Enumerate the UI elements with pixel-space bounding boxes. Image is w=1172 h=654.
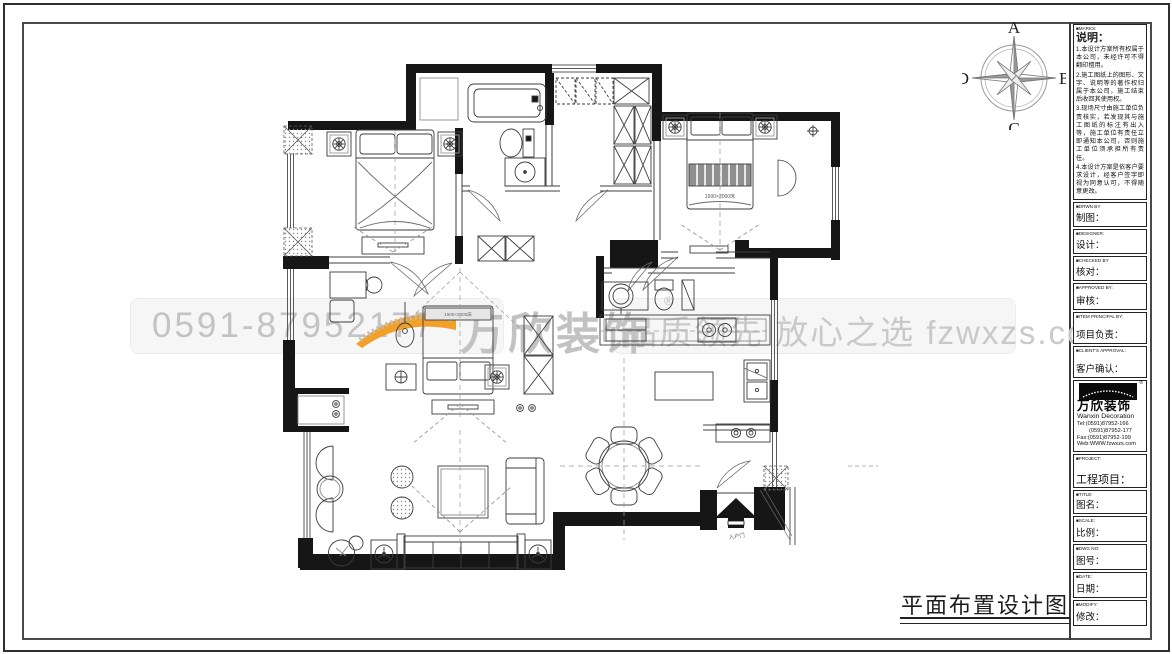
field-drawn-by-zh: 制图： <box>1076 213 1144 225</box>
compass-north-label: A <box>1008 20 1021 37</box>
field-checked-by: ■CHECKED BY 核对： <box>1073 256 1147 281</box>
entrance-label: 入户门 <box>728 531 745 541</box>
kitchen <box>600 315 770 402</box>
note-item-1: 1.本设计方案所有权属于本公司，未经许可不得翻印擅用。 <box>1076 46 1144 71</box>
company-name-cn: 万欣装饰 <box>1077 400 1131 413</box>
compass-south-label: C <box>1008 119 1019 130</box>
walls <box>283 64 840 570</box>
field-project-en: ■PROJECT: <box>1076 456 1144 462</box>
field-checked-by-zh: 核对： <box>1076 267 1144 279</box>
compass-east-label: B <box>1059 69 1066 88</box>
titleblock: ■MARKS: 说明： 1.本设计方案所有权属于本公司，未经许可不得翻印擅用。 … <box>1073 24 1147 626</box>
field-modify-zh: 修改： <box>1076 612 1144 624</box>
field-project: ■PROJECT: 工程项目： <box>1073 454 1147 488</box>
company-box: ® 万欣装饰 Wanxin Decoration Tel:(0591)87952… <box>1073 380 1147 452</box>
field-dwg-no-zh: 图号： <box>1076 556 1144 568</box>
company-tel-1: Tel:(0591)87952-166 <box>1077 421 1129 428</box>
field-drawn-by: ■DRWN BY 制图： <box>1073 202 1147 227</box>
company-name-en: Wanxin Decoration <box>1077 413 1134 421</box>
field-dwg-no-en: ■DWG NO: <box>1076 546 1144 552</box>
field-approved-by-zh: 审核： <box>1076 296 1144 308</box>
field-item-principal-en: ■ITEM PRINCIPAL BY: <box>1076 314 1144 320</box>
bedroom3: 1500×2000床 <box>330 268 535 444</box>
field-title-en: ■TITLE: <box>1076 492 1144 498</box>
company-logo-reg-icon: ® <box>1139 380 1143 386</box>
field-item-principal: ■ITEM PRINCIPAL BY: 项目负责： <box>1073 312 1147 344</box>
compass-west-label: D <box>962 69 969 88</box>
note-item-3: 3.现场尺寸由施工单位负责核实，若发现其与施工图纸的标注有出入等，施工单位有责任… <box>1076 105 1144 162</box>
compass-rose: A B C D <box>962 20 1066 130</box>
field-project-zh: 工程项目： <box>1076 474 1144 486</box>
field-scale-en: ■SCALE: <box>1076 518 1144 524</box>
windows <box>288 65 839 545</box>
utility-balcony <box>298 396 344 424</box>
bathroom1 <box>468 84 546 186</box>
field-date-zh: 日期： <box>1076 584 1144 596</box>
field-modify: ■MODIFY: 修改： <box>1073 600 1147 626</box>
field-client-approval-zh: 客户确认： <box>1076 364 1144 376</box>
field-scale: ■SCALE: 比例： <box>1073 516 1147 542</box>
field-designer-en: ■DESIGNER: <box>1076 231 1144 237</box>
field-drawn-by-en: ■DRWN BY <box>1076 204 1144 210</box>
field-checked-by-en: ■CHECKED BY <box>1076 258 1144 264</box>
company-tel-2: (0591)87952-177 <box>1077 428 1132 435</box>
notes-label-zh: 说明： <box>1076 32 1144 45</box>
field-designer-zh: 设计： <box>1076 240 1144 252</box>
field-approved-by: ■APPROVED BY: 审核： <box>1073 283 1147 310</box>
company-logo-icon: ® <box>1079 383 1137 400</box>
notes-box: ■MARKS: 说明： 1.本设计方案所有权属于本公司，未经许可不得翻印擅用。 … <box>1073 24 1147 200</box>
field-date-en: ■DATE: <box>1076 574 1144 580</box>
field-title-zh: 图名： <box>1076 500 1144 512</box>
bed-size-label-2: 1500×2000床 <box>444 311 472 318</box>
company-fax: Fax:(0591)87952-199 <box>1077 435 1131 442</box>
living-room <box>316 430 551 569</box>
company-web: Web:WWW.fzwxzs.com <box>1077 441 1136 448</box>
note-item-4: 4.本设计方案是依客户要求设计，经客户签字即视为同意认可，不得随意更改。 <box>1076 164 1144 197</box>
field-client-approval-en: ■CLIENT'S APPROVAL: <box>1076 348 1144 354</box>
field-item-principal-zh: 项目负责： <box>1076 330 1144 342</box>
drawing-sheet: 0591-87952177 品质领先 放心之选 fzwxzs.com 万欣装饰 … <box>0 0 1172 654</box>
field-modify-en: ■MODIFY: <box>1076 602 1144 608</box>
drawing-title: 平面布置设计图 <box>900 588 1070 620</box>
field-dwg-no: ■DWG NO: 图号： <box>1073 544 1147 570</box>
bedroom1 <box>327 130 462 254</box>
field-title: ■TITLE: 图名： <box>1073 490 1147 514</box>
wardrobes <box>478 78 651 394</box>
field-designer: ■DESIGNER: 设计： <box>1073 229 1147 254</box>
bathroom2 <box>602 280 694 314</box>
field-scale-zh: 比例： <box>1076 528 1144 540</box>
drawing-title-underline <box>900 617 1070 624</box>
note-item-2: 2.施工图纸上的图形、文字、说明等的著作权归属于本公司，施工结束后收回其使用权。 <box>1076 72 1144 105</box>
field-client-approval: ■CLIENT'S APPROVAL: 客户确认： <box>1073 346 1147 378</box>
field-approved-by-en: ■APPROVED BY: <box>1076 285 1144 291</box>
field-date: ■DATE: 日期： <box>1073 572 1147 598</box>
